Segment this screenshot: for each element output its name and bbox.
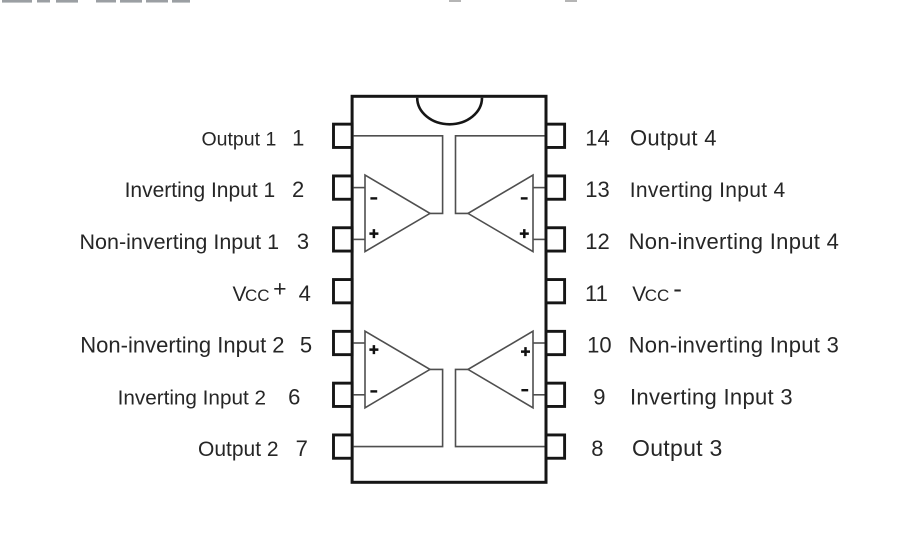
svg-text:4: 4 (299, 281, 311, 306)
svg-text:Output 3: Output 3 (632, 435, 723, 461)
svg-text:Inverting Input 2: Inverting Input 2 (118, 386, 266, 409)
svg-text:VCC+: VCC+ (233, 275, 287, 306)
svg-text:8: 8 (591, 436, 603, 461)
svg-text:Inverting Input 3: Inverting Input 3 (630, 384, 793, 409)
svg-text:Output 4: Output 4 (630, 125, 717, 150)
svg-text:Output 2: Output 2 (198, 438, 279, 461)
svg-text:9: 9 (593, 384, 605, 409)
svg-text:6: 6 (288, 384, 300, 409)
svg-text:3: 3 (297, 229, 309, 254)
svg-text:VCC-: VCC- (632, 273, 682, 305)
svg-text:11: 11 (585, 281, 608, 306)
svg-text:Non-inverting Input 1: Non-inverting Input 1 (80, 230, 280, 254)
svg-text:Output 1: Output 1 (202, 128, 277, 150)
svg-text:Inverting Input 1: Inverting Input 1 (125, 179, 276, 202)
svg-text:Non-inverting Input 2: Non-inverting Input 2 (80, 333, 284, 358)
svg-text:1: 1 (292, 125, 304, 150)
svg-text:14: 14 (585, 125, 609, 150)
svg-text:13: 13 (585, 177, 609, 202)
svg-text:10: 10 (587, 333, 611, 358)
svg-text:Non-inverting Input 3: Non-inverting Input 3 (629, 333, 840, 358)
svg-text:7: 7 (296, 436, 308, 461)
svg-text:Non-inverting Input 4: Non-inverting Input 4 (629, 229, 840, 254)
svg-text:12: 12 (585, 229, 609, 254)
svg-text:5: 5 (300, 333, 312, 358)
svg-text:2: 2 (292, 177, 304, 202)
svg-text:Inverting Input 4: Inverting Input 4 (630, 179, 786, 202)
